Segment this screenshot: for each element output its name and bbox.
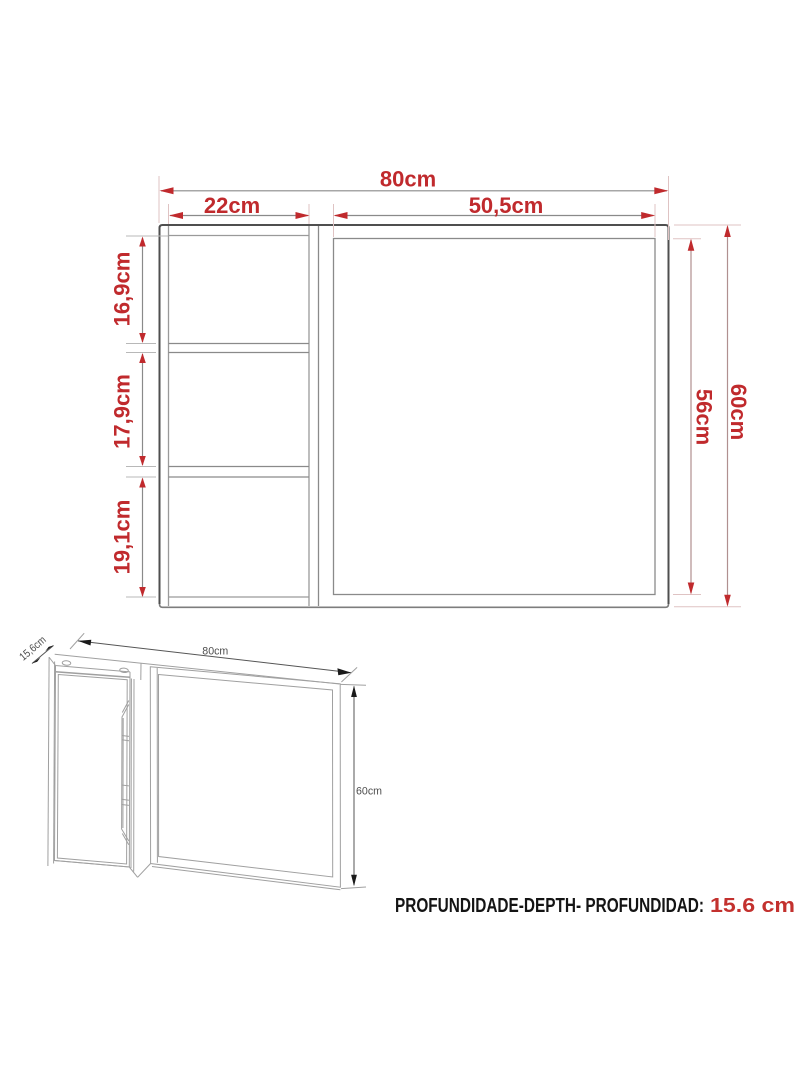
svg-text:16,9cm: 16,9cm xyxy=(110,252,135,327)
svg-text:60cm: 60cm xyxy=(356,785,382,797)
svg-text:15,6cm: 15,6cm xyxy=(17,634,48,663)
svg-text:19,1cm: 19,1cm xyxy=(110,500,135,575)
svg-text:50,5cm: 50,5cm xyxy=(469,193,544,218)
svg-text:56cm: 56cm xyxy=(692,389,717,445)
svg-text:17,9cm: 17,9cm xyxy=(110,374,135,449)
svg-text:PROFUNDIDADE-DEPTH- PROFUNDIDA: PROFUNDIDADE-DEPTH- PROFUNDIDAD: xyxy=(395,894,704,917)
svg-text:22cm: 22cm xyxy=(204,193,260,218)
svg-text:60cm: 60cm xyxy=(726,384,751,440)
svg-text:15.6 cm: 15.6 cm xyxy=(710,894,795,917)
svg-text:80cm: 80cm xyxy=(202,645,228,657)
svg-text:80cm: 80cm xyxy=(380,167,436,192)
